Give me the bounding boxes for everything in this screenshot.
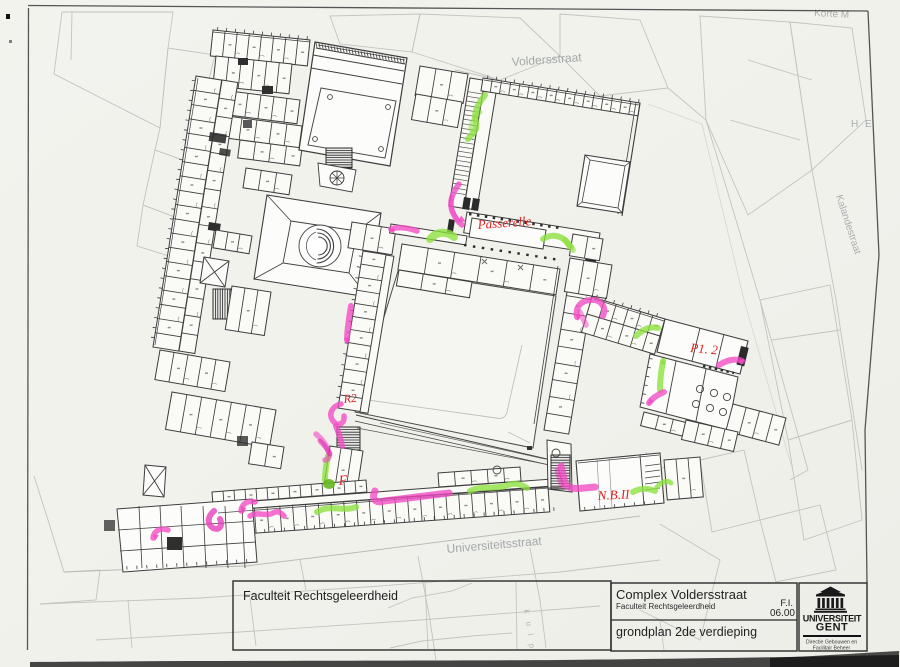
svg-text:Faculteit Rechtsgeleerdheid: Faculteit Rechtsgeleerdheid <box>243 589 398 603</box>
svg-text:N.B.II: N.B.II <box>596 486 630 503</box>
svg-text:Complex Voldersstraat: Complex Voldersstraat <box>616 587 747 602</box>
svg-text:Facilitair Beheer: Facilitair Beheer <box>813 646 851 652</box>
svg-text:06.00: 06.00 <box>770 608 795 619</box>
svg-text:Faculteit Rechtsgeleerdheid: Faculteit Rechtsgeleerdheid <box>616 602 715 611</box>
svg-text:P1. 2: P1. 2 <box>689 340 719 357</box>
svg-text:Korte M: Korte M <box>814 8 850 21</box>
svg-text:GENT: GENT <box>816 622 849 634</box>
svg-text:grondplan 2de verdieping: grondplan 2de verdieping <box>616 625 757 639</box>
svg-text:F: F <box>337 473 348 489</box>
svg-text:R2: R2 <box>342 391 358 406</box>
svg-text:H E: H E <box>851 119 874 130</box>
